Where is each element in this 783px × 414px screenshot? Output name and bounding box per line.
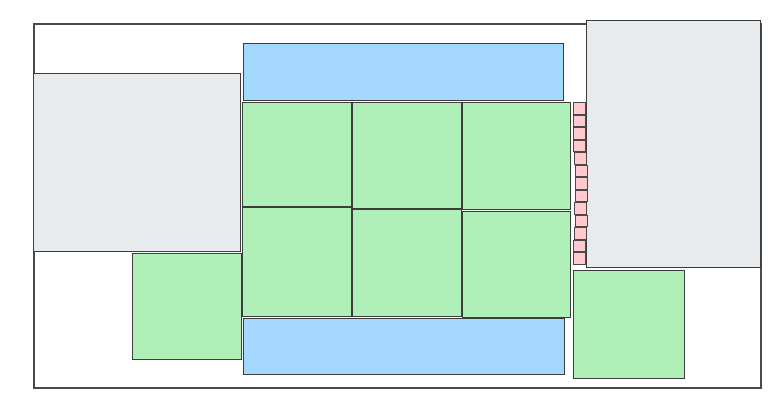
pink-cell-11 <box>574 227 587 240</box>
pink-cell-8 <box>575 190 588 203</box>
floorplan-canvas <box>0 0 783 414</box>
green-macro-r2c3 <box>462 211 571 318</box>
pink-cell-6 <box>575 165 588 178</box>
blue-band-top <box>243 43 564 101</box>
green-macro-r2c1 <box>242 207 352 317</box>
pink-cell-13 <box>573 252 586 265</box>
pink-cell-5 <box>574 152 587 165</box>
gray-block-right <box>586 20 761 268</box>
blue-band-bottom <box>243 318 565 375</box>
green-macro-r1c3 <box>462 102 571 210</box>
gray-block-left <box>33 73 241 252</box>
green-macro-r1c1 <box>242 102 352 207</box>
green-macro-bottom-right <box>573 270 685 379</box>
pink-cell-10 <box>575 215 588 228</box>
pink-cell-4 <box>573 140 586 153</box>
pink-cell-2 <box>573 115 586 128</box>
green-macro-r1c2 <box>352 102 462 209</box>
pink-cell-9 <box>574 202 587 215</box>
green-macro-r2c2 <box>352 209 462 317</box>
pink-cell-12 <box>573 240 586 253</box>
green-macro-bottom-left <box>132 253 242 360</box>
pink-cell-1 <box>573 102 586 115</box>
pink-cell-3 <box>573 127 586 140</box>
pink-cell-7 <box>575 177 588 190</box>
